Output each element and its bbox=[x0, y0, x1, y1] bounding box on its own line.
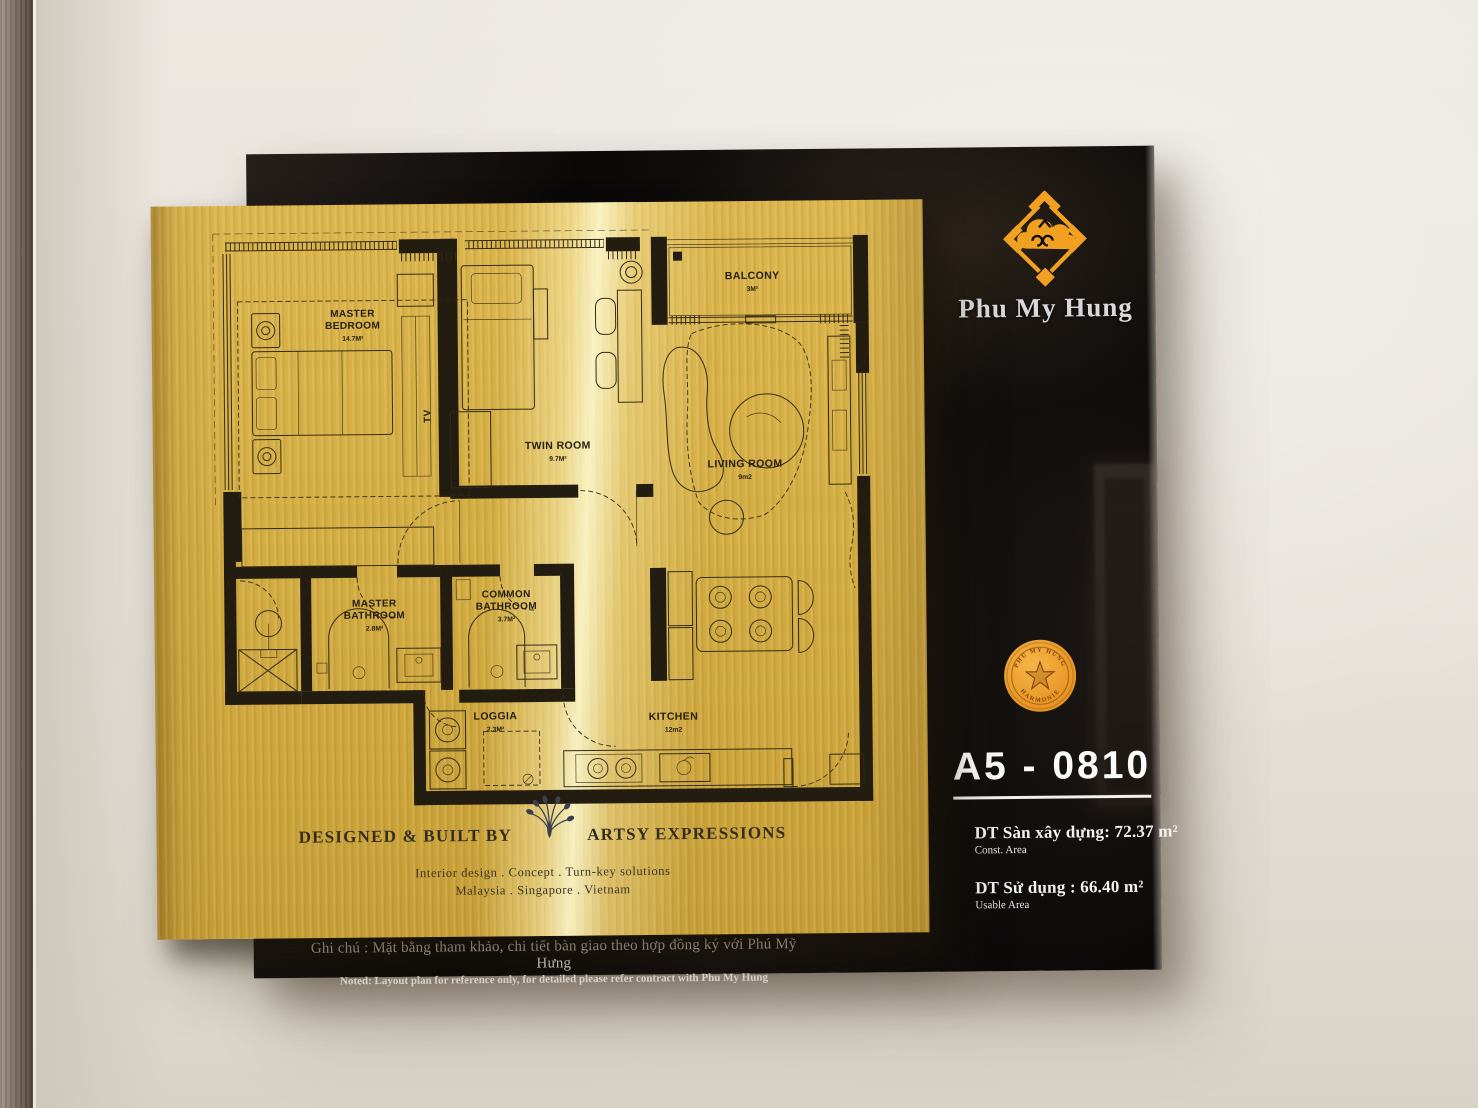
area-info: DT Sàn xây dựng: 72.37 m² Const. Area DT… bbox=[975, 821, 1186, 933]
property-line bbox=[213, 230, 652, 506]
kitchen-furniture bbox=[562, 570, 864, 787]
svg-text:12m2: 12m2 bbox=[665, 727, 683, 734]
phu-my-hung-logo-icon bbox=[996, 190, 1093, 291]
usable-area-label: DT Sử dụng : 66.40 m² bbox=[975, 876, 1185, 898]
living-room-furniture bbox=[662, 323, 855, 590]
brand-wordmark: Phu My Hung bbox=[935, 292, 1155, 325]
floor-plan: MASTER BEDROOM 14.7M² TWIN ROOM 9.7M² BA… bbox=[179, 220, 877, 811]
tv-wall-label: TV bbox=[422, 409, 433, 423]
usable-area-row: DT Sử dụng : 66.40 m² Usable Area bbox=[975, 876, 1185, 911]
brand-block: Phu My Hung bbox=[934, 190, 1155, 325]
photo-scene: Phu My Hung PHU MY HUNG HARMONIE bbox=[0, 0, 1478, 1108]
wall-shadow-band bbox=[36, 0, 166, 1108]
svg-text:2.3M²: 2.3M² bbox=[487, 726, 505, 733]
room-label-balcony: BALCONY bbox=[725, 270, 780, 283]
const-area-row: DT Sàn xây dựng: 72.37 m² Const. Area bbox=[975, 821, 1185, 856]
room-label-master-bedroom: MASTER bbox=[330, 309, 375, 320]
const-area-sublabel: Const. Area bbox=[975, 842, 1185, 856]
svg-text:9.7M²: 9.7M² bbox=[549, 456, 567, 463]
gold-plate: MASTER BEDROOM 14.7M² TWIN ROOM 9.7M² BA… bbox=[150, 199, 929, 939]
wood-door-frame bbox=[0, 0, 33, 1108]
designer-name: ARTSY EXPRESSIONS bbox=[587, 823, 786, 844]
usable-area-sublabel: Usable Area bbox=[975, 897, 1185, 911]
designer-credit: DESIGNED & BUILT BY bbox=[156, 807, 929, 901]
svg-text:BEDROOM: BEDROOM bbox=[325, 321, 380, 333]
room-label-living-room: LIVING ROOM bbox=[707, 458, 782, 471]
door-swings bbox=[397, 488, 849, 790]
svg-text:BATHROOM: BATHROOM bbox=[476, 601, 537, 613]
const-area-label: DT Sàn xây dựng: 72.37 m² bbox=[975, 821, 1185, 843]
svg-text:3.7M²: 3.7M² bbox=[498, 616, 516, 623]
footnote-vietnamese: Ghi chú : Mặt bằng tham khảo, chi tiết b… bbox=[294, 936, 814, 975]
room-label-master-bathroom: MASTER bbox=[352, 598, 397, 609]
designer-countries: Malaysia . Singapore . Vietnam bbox=[157, 879, 929, 901]
footnote: Ghi chú : Mặt bằng tham khảo, chi tiết b… bbox=[294, 936, 814, 988]
svg-text:BATHROOM: BATHROOM bbox=[344, 610, 405, 622]
designer-prefix: DESIGNED & BUILT BY bbox=[299, 826, 512, 847]
svg-text:2.8M²: 2.8M² bbox=[366, 626, 384, 633]
peacock-icon bbox=[524, 795, 574, 846]
room-label-common-bathroom: COMMON bbox=[482, 589, 531, 600]
svg-text:9m2: 9m2 bbox=[738, 474, 752, 481]
room-label-kitchen: KITCHEN bbox=[649, 710, 699, 722]
unit-number: A5 - 0810 bbox=[942, 744, 1162, 790]
svg-text:3M²: 3M² bbox=[746, 286, 759, 293]
harmonie-seal: PHU MY HUNG HARMONIE bbox=[1003, 638, 1078, 713]
room-label-loggia: LOGGIA bbox=[473, 710, 517, 722]
svg-text:14.7M²: 14.7M² bbox=[342, 336, 364, 343]
twin-room-furniture bbox=[449, 261, 644, 488]
room-label-twin-room: TWIN ROOM bbox=[525, 440, 591, 453]
unit-number-block: A5 - 0810 bbox=[942, 744, 1163, 800]
